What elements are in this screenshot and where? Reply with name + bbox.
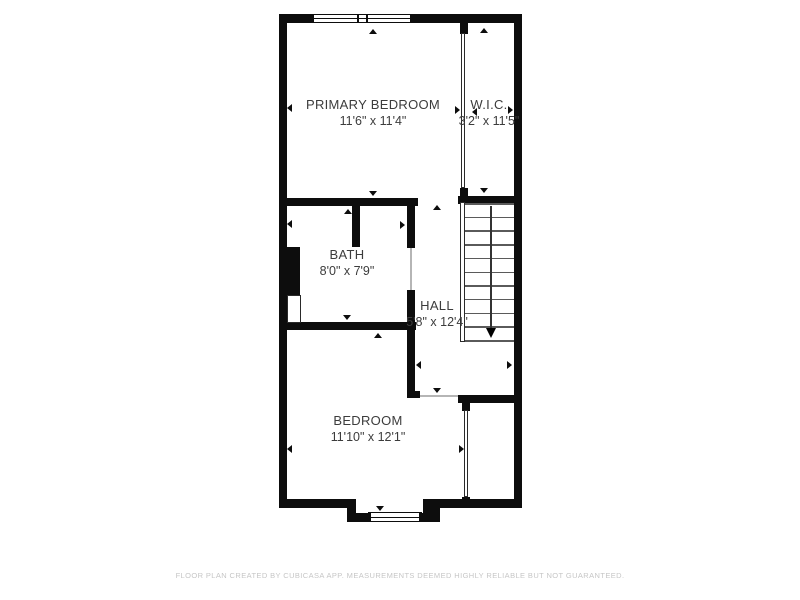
measure-arrow-icon: [455, 106, 460, 114]
window-mullion: [357, 15, 359, 22]
closet-divider-partition: [464, 410, 468, 497]
bath-door-threshold: [410, 248, 412, 290]
measure-arrow-icon: [369, 191, 377, 196]
window-mullion: [366, 15, 368, 22]
measure-arrow-icon: [287, 104, 292, 112]
measure-arrow-icon: [459, 445, 464, 453]
room-dimensions: 5'8" x 12'4": [406, 314, 468, 330]
room-label: HALL: [406, 298, 468, 314]
stairs-direction-arrow-icon: [486, 328, 496, 338]
wall-bath-interior-stub: [352, 198, 360, 247]
footer-disclaimer: FLOOR PLAN CREATED BY CUBICASA APP. MEAS…: [0, 571, 800, 580]
measure-arrow-icon: [472, 108, 477, 116]
room-bath: BATH 8'0" x 7'9": [320, 247, 375, 279]
room-dimensions: 11'6" x 11'4": [306, 113, 440, 129]
stair-tread: [465, 203, 514, 205]
measure-arrow-icon: [508, 106, 513, 114]
room-hall: HALL 5'8" x 12'4": [406, 298, 468, 330]
wall-primary-south: [279, 198, 418, 206]
stairs-direction-line: [490, 206, 492, 328]
staircase: [460, 196, 514, 346]
wall-closet-bottom-stub: [462, 497, 470, 508]
measure-arrow-icon: [374, 333, 382, 338]
room-label: BATH: [320, 247, 375, 263]
bath-fixture-outline: [287, 295, 301, 323]
room-dimensions: 3'2" x 11'5": [459, 113, 520, 129]
top-wall-window-symbol: [313, 14, 411, 23]
measure-arrow-icon: [369, 29, 377, 34]
window-midline: [314, 18, 410, 19]
wall-outer-bottom-right: [423, 499, 522, 508]
wall-outer-bottom-left: [279, 499, 356, 508]
stair-tread: [465, 340, 514, 342]
measure-arrow-icon: [480, 188, 488, 193]
measure-arrow-icon: [433, 388, 441, 393]
measure-arrow-icon: [400, 221, 405, 229]
measure-arrow-icon: [416, 361, 421, 369]
room-label: PRIMARY BEDROOM: [306, 97, 440, 113]
measure-arrow-icon: [287, 445, 292, 453]
bottom-wall-window-symbol: [368, 512, 422, 522]
room-dimensions: 8'0" x 7'9": [320, 263, 375, 279]
measure-arrow-icon: [376, 506, 384, 511]
room-bedroom: BEDROOM 11'10" x 12'1": [331, 413, 406, 445]
floor-plan: PRIMARY BEDROOM 11'6" x 11'4" W.I.C. 3'2…: [0, 0, 800, 600]
measure-arrow-icon: [507, 361, 512, 369]
measure-arrow-icon: [480, 28, 488, 33]
wall-outer-right: [514, 14, 522, 508]
wall-hall-west-foot-stub: [407, 391, 420, 398]
measure-arrow-icon: [343, 315, 351, 320]
measure-arrow-icon: [344, 209, 352, 214]
room-dimensions: 11'10" x 12'1": [331, 429, 406, 445]
bath-fixture-block: [279, 247, 300, 295]
measure-arrow-icon: [287, 220, 292, 228]
wall-bath-south: [279, 322, 416, 330]
room-label: BEDROOM: [331, 413, 406, 429]
bedroom-door-threshold: [420, 395, 458, 397]
room-primary-bedroom: PRIMARY BEDROOM 11'6" x 11'4": [306, 97, 440, 129]
wall-hall-west-upper: [407, 198, 415, 248]
measure-arrow-icon: [433, 205, 441, 210]
window-midline: [371, 517, 419, 518]
